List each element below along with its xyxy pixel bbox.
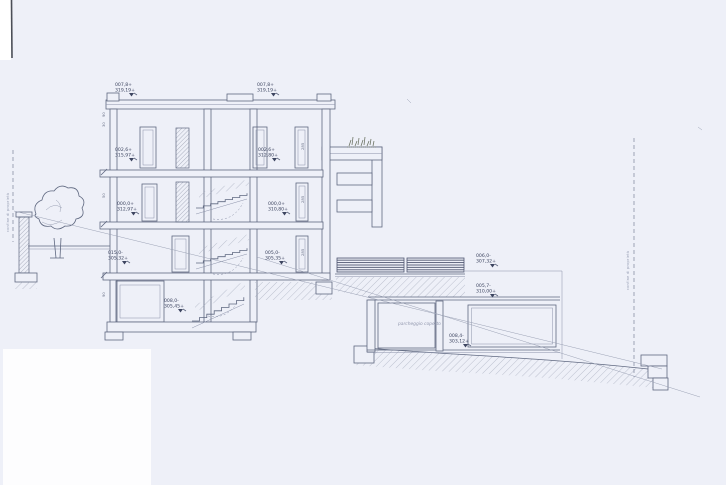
svg-text:305,45+: 305,45+ bbox=[164, 304, 184, 310]
property-line-right-label: confine di proprietà bbox=[626, 251, 630, 290]
svg-text:008,0-: 008,0- bbox=[164, 298, 179, 304]
svg-text:90: 90 bbox=[101, 112, 106, 117]
svg-text:007,8+: 007,8+ bbox=[257, 82, 274, 88]
svg-text:303,12+: 303,12+ bbox=[449, 339, 469, 345]
svg-text:285: 285 bbox=[300, 248, 305, 256]
svg-text:312,80+: 312,80+ bbox=[258, 153, 278, 159]
svg-text:305,35+: 305,35+ bbox=[265, 256, 285, 262]
floor-slab bbox=[100, 170, 323, 177]
right-exterior-wall bbox=[322, 109, 330, 280]
section-svg: parcheggio coperto bbox=[0, 0, 726, 485]
svg-text:002,6+: 002,6+ bbox=[258, 147, 275, 153]
svg-text:312,97+: 312,97+ bbox=[117, 207, 137, 213]
svg-text:007,8+: 007,8+ bbox=[115, 82, 132, 88]
svg-text:285: 285 bbox=[300, 142, 305, 150]
svg-text:319,19+: 319,19+ bbox=[115, 88, 135, 94]
svg-text:305,32+: 305,32+ bbox=[108, 256, 128, 262]
svg-text:008,4-: 008,4- bbox=[449, 333, 464, 339]
svg-text:310,80+: 310,80+ bbox=[268, 207, 288, 213]
svg-text:310,00+: 310,00+ bbox=[476, 289, 496, 295]
svg-text:000,0+: 000,0+ bbox=[268, 201, 285, 207]
scan-corner-white bbox=[0, 0, 11, 60]
property-line-left-label: confine di proprietà bbox=[6, 193, 10, 232]
louver-deck bbox=[335, 258, 465, 277]
svg-text:307,32+: 307,32+ bbox=[476, 259, 496, 265]
svg-text:90: 90 bbox=[101, 292, 106, 297]
svg-text:50: 50 bbox=[101, 193, 106, 198]
scanned-section-drawing: parcheggio coperto bbox=[0, 0, 726, 485]
svg-text:002,6+: 002,6+ bbox=[115, 147, 132, 153]
svg-text:30: 30 bbox=[101, 122, 106, 127]
svg-text:005,7-: 005,7- bbox=[476, 283, 491, 289]
svg-text:285: 285 bbox=[300, 195, 305, 203]
paper-patch bbox=[3, 349, 151, 485]
svg-text:000,0+: 000,0+ bbox=[117, 201, 134, 207]
svg-text:005,0-: 005,0- bbox=[265, 250, 280, 256]
floor-slab bbox=[103, 273, 330, 280]
svg-text:006,0-: 006,0- bbox=[476, 253, 491, 259]
svg-text:015,0-: 015,0- bbox=[108, 250, 123, 256]
scan-edge-line bbox=[12, 0, 13, 58]
svg-text:315,97+: 315,97+ bbox=[115, 153, 135, 159]
floor-slab bbox=[100, 222, 323, 229]
garage-room-label: parcheggio coperto bbox=[397, 321, 441, 327]
svg-text:319,19+: 319,19+ bbox=[257, 88, 277, 94]
